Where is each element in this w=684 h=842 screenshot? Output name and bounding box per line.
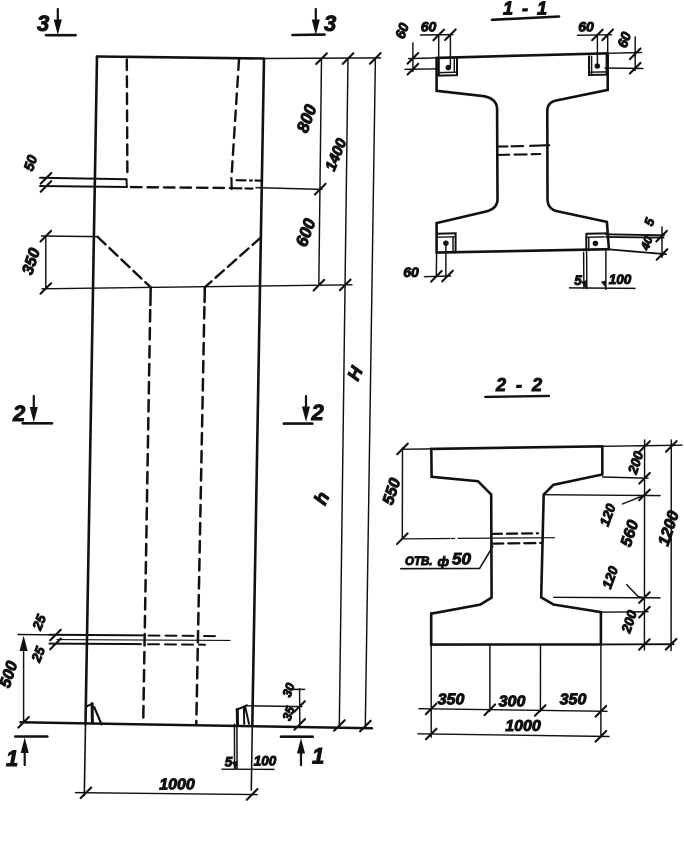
svg-text:120: 120 <box>599 564 621 591</box>
svg-text:200: 200 <box>625 449 647 476</box>
svg-text:5: 5 <box>574 273 582 288</box>
svg-text:550: 550 <box>380 476 404 507</box>
svg-text:800: 800 <box>293 102 321 136</box>
svg-text:30: 30 <box>280 681 298 699</box>
svg-text:1200: 1200 <box>656 509 683 548</box>
svg-text:350: 350 <box>438 692 465 709</box>
svg-text:25: 25 <box>28 644 48 665</box>
svg-text:350: 350 <box>20 246 44 277</box>
svg-text:50: 50 <box>452 550 471 569</box>
svg-text:60: 60 <box>614 30 634 50</box>
svg-text:1000: 1000 <box>505 718 541 735</box>
svg-text:60: 60 <box>578 19 594 35</box>
svg-text:100: 100 <box>609 272 632 287</box>
svg-text:25: 25 <box>29 612 49 633</box>
svg-text:60: 60 <box>392 21 412 41</box>
svg-text:120: 120 <box>597 501 619 528</box>
svg-text:1 - 1: 1 - 1 <box>503 0 549 19</box>
svg-text:ОТВ.: ОТВ. <box>405 556 432 568</box>
svg-text:300: 300 <box>499 694 526 711</box>
svg-text:1: 1 <box>312 744 324 769</box>
svg-text:ф: ф <box>438 554 450 569</box>
svg-text:H: H <box>343 362 367 383</box>
svg-text:60: 60 <box>403 264 419 280</box>
svg-text:1: 1 <box>6 746 18 771</box>
svg-text:1000: 1000 <box>159 777 195 794</box>
svg-text:3: 3 <box>324 11 336 36</box>
svg-text:600: 600 <box>292 216 320 250</box>
svg-text:560: 560 <box>618 518 642 549</box>
svg-text:2 - 2: 2 - 2 <box>495 375 545 395</box>
svg-text:50: 50 <box>20 153 40 173</box>
svg-text:2: 2 <box>311 400 325 425</box>
svg-text:h: h <box>311 489 335 508</box>
svg-text:350: 350 <box>560 692 587 709</box>
svg-text:60: 60 <box>421 19 437 35</box>
svg-text:100: 100 <box>254 754 277 769</box>
svg-text:3: 3 <box>37 11 49 36</box>
svg-text:500: 500 <box>0 659 21 690</box>
svg-text:5: 5 <box>641 215 658 228</box>
svg-text:5: 5 <box>225 755 233 770</box>
